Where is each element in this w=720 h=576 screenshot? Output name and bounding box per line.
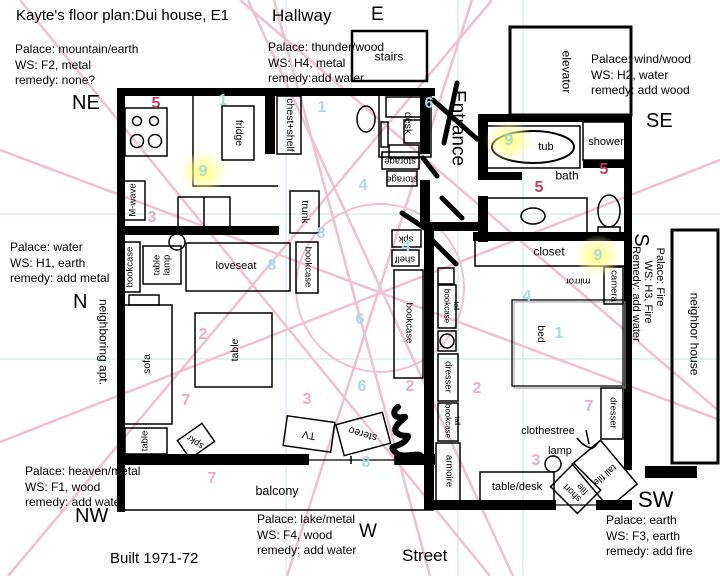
label-built: Built 1971-72 <box>110 551 198 568</box>
label-bookcase-mid: bookcase <box>302 247 313 288</box>
label-storage-1: storage <box>384 155 416 166</box>
flying-star-5: 5 <box>152 95 161 113</box>
label-street: Street <box>402 546 447 565</box>
label-dir-ne: NE <box>72 92 100 114</box>
flying-star-3: 3 <box>148 209 157 227</box>
label-table-desk: table/desk <box>492 481 542 493</box>
flying-star-3: 3 <box>303 391 312 409</box>
label-tub: tub <box>538 141 553 153</box>
label-palace-s-3: Remedy: add water <box>630 246 642 341</box>
label-short-file: short file <box>562 475 590 503</box>
label-dir-nw: NW <box>75 505 108 527</box>
label-mirror: mirror <box>566 275 591 286</box>
label-neighboring-apt: neighboring apt. <box>96 299 109 385</box>
label-palace-ne: Palace: mountain/earth WS: F2, metal rem… <box>15 42 138 89</box>
label-elevator: elevator <box>559 51 572 94</box>
label-neighbor-house: neighbor house <box>687 293 700 376</box>
label-palace-n: Palace: water WS: H1, earth remedy: add … <box>10 240 109 287</box>
flying-star-2: 2 <box>199 326 208 344</box>
label-sofa: sofa <box>142 354 154 374</box>
label-loveseat: loveseat <box>216 260 257 272</box>
flying-star-7: 7 <box>208 470 217 488</box>
label-clothestree: clothestree <box>521 425 575 437</box>
label-palace-s-2: WS: H3, Fire <box>642 261 654 324</box>
label-tall-2: tall <box>452 417 460 426</box>
label-palace-sw: Palace: earth WS: F3, earth remedy: add … <box>606 513 693 560</box>
label-shower: shower <box>588 136 623 148</box>
flying-star-7: 7 <box>585 398 594 416</box>
label-dir-e: E <box>371 4 384 25</box>
flying-star-9: 9 <box>505 132 514 150</box>
flying-star-4: 4 <box>523 288 532 306</box>
flying-star-8: 8 <box>362 454 371 472</box>
label-hallway: Hallway <box>272 6 332 25</box>
flying-star-1: 1 <box>318 99 327 117</box>
label-table-lamp: table lamp <box>153 255 172 276</box>
label-dresser-bed-l: dresser <box>442 361 453 393</box>
label-dresser-bed-r: dresser <box>607 397 618 429</box>
flying-star-2: 2 <box>473 380 482 398</box>
label-spkr: spkr <box>186 431 207 450</box>
flying-star-8: 8 <box>268 257 277 275</box>
label-balcony: balcony <box>255 484 298 498</box>
label-dir-w: W <box>359 521 377 542</box>
label-m-wave: M-wave <box>129 183 140 216</box>
flying-star-8: 8 <box>317 225 326 243</box>
label-palace-w: Palace: lake/metal WS: F4, wood remedy: … <box>257 512 356 559</box>
label-palace-se: Palace: wind/wood WS: H2, water remedy: … <box>591 52 691 99</box>
label-trunk: trunk <box>298 200 310 223</box>
flying-star-7: 7 <box>182 392 191 410</box>
label-table-dining: table <box>230 339 242 362</box>
flying-star-6: 6 <box>358 378 367 396</box>
flying-star-5: 5 <box>535 179 544 197</box>
label-bath: bath <box>555 169 578 182</box>
label-armoire: armoire <box>443 455 454 487</box>
label-bookcase-nw: bookcase <box>126 247 137 288</box>
label-desk: desk <box>401 112 413 134</box>
floor-plan-page: Kayte's floor plan:Dui house, E1HallwayE… <box>0 0 720 576</box>
flying-star-1: 1 <box>555 325 564 343</box>
label-bookcase-wall: bookcase <box>403 303 414 344</box>
flying-star-2: 2 <box>406 378 415 396</box>
flying-star-5: 5 <box>600 161 609 179</box>
label-dir-sw: SW <box>638 488 673 513</box>
label-camera: camera <box>608 270 619 302</box>
flying-star-6: 6 <box>425 95 434 113</box>
label-chest-shelf: chest+shelf <box>283 98 295 151</box>
label-storage-2: storage <box>386 173 418 184</box>
label-palace-e: Palace: thunder/wood WS: H4, metal remed… <box>268 40 384 87</box>
label-table-small: table <box>141 431 152 452</box>
flying-star-4: 4 <box>402 238 411 256</box>
label-dir-se: SE <box>646 110 673 132</box>
label-stereo: stereo <box>347 423 378 443</box>
flying-star-4: 4 <box>359 177 368 195</box>
flying-star-6: 6 <box>356 311 365 329</box>
label-lamp: lamp <box>548 445 572 457</box>
label-palace-nw: Palace: heaven/metal WS: F1, wood remedy… <box>25 464 140 511</box>
flying-star-9: 9 <box>199 163 208 181</box>
flying-star-3: 3 <box>532 452 541 470</box>
label-bookcase-bed1: bookcase <box>442 289 451 323</box>
label-tall-file: tall file <box>590 461 617 486</box>
label-tall-1: tall <box>451 302 459 311</box>
label-dir-s: S <box>630 233 652 246</box>
label-dir-n: N <box>73 291 87 313</box>
label-tv: TV <box>301 427 316 441</box>
label-bed: bed <box>534 325 546 343</box>
label-palace-s-1: Palace: Fire <box>654 248 666 307</box>
label-bookcase-bed2: bookcase <box>443 404 452 438</box>
label-fridge: fridge <box>232 120 244 146</box>
flying-star-9: 9 <box>594 247 603 265</box>
label-entrance: Entrance <box>447 90 468 166</box>
label-closet: closet <box>533 245 564 258</box>
flying-star-1: 1 <box>219 92 228 110</box>
label-overlay: Kayte's floor plan:Dui house, E1HallwayE… <box>0 0 720 576</box>
label-title: Kayte's floor plan:Dui house, E1 <box>16 8 229 25</box>
